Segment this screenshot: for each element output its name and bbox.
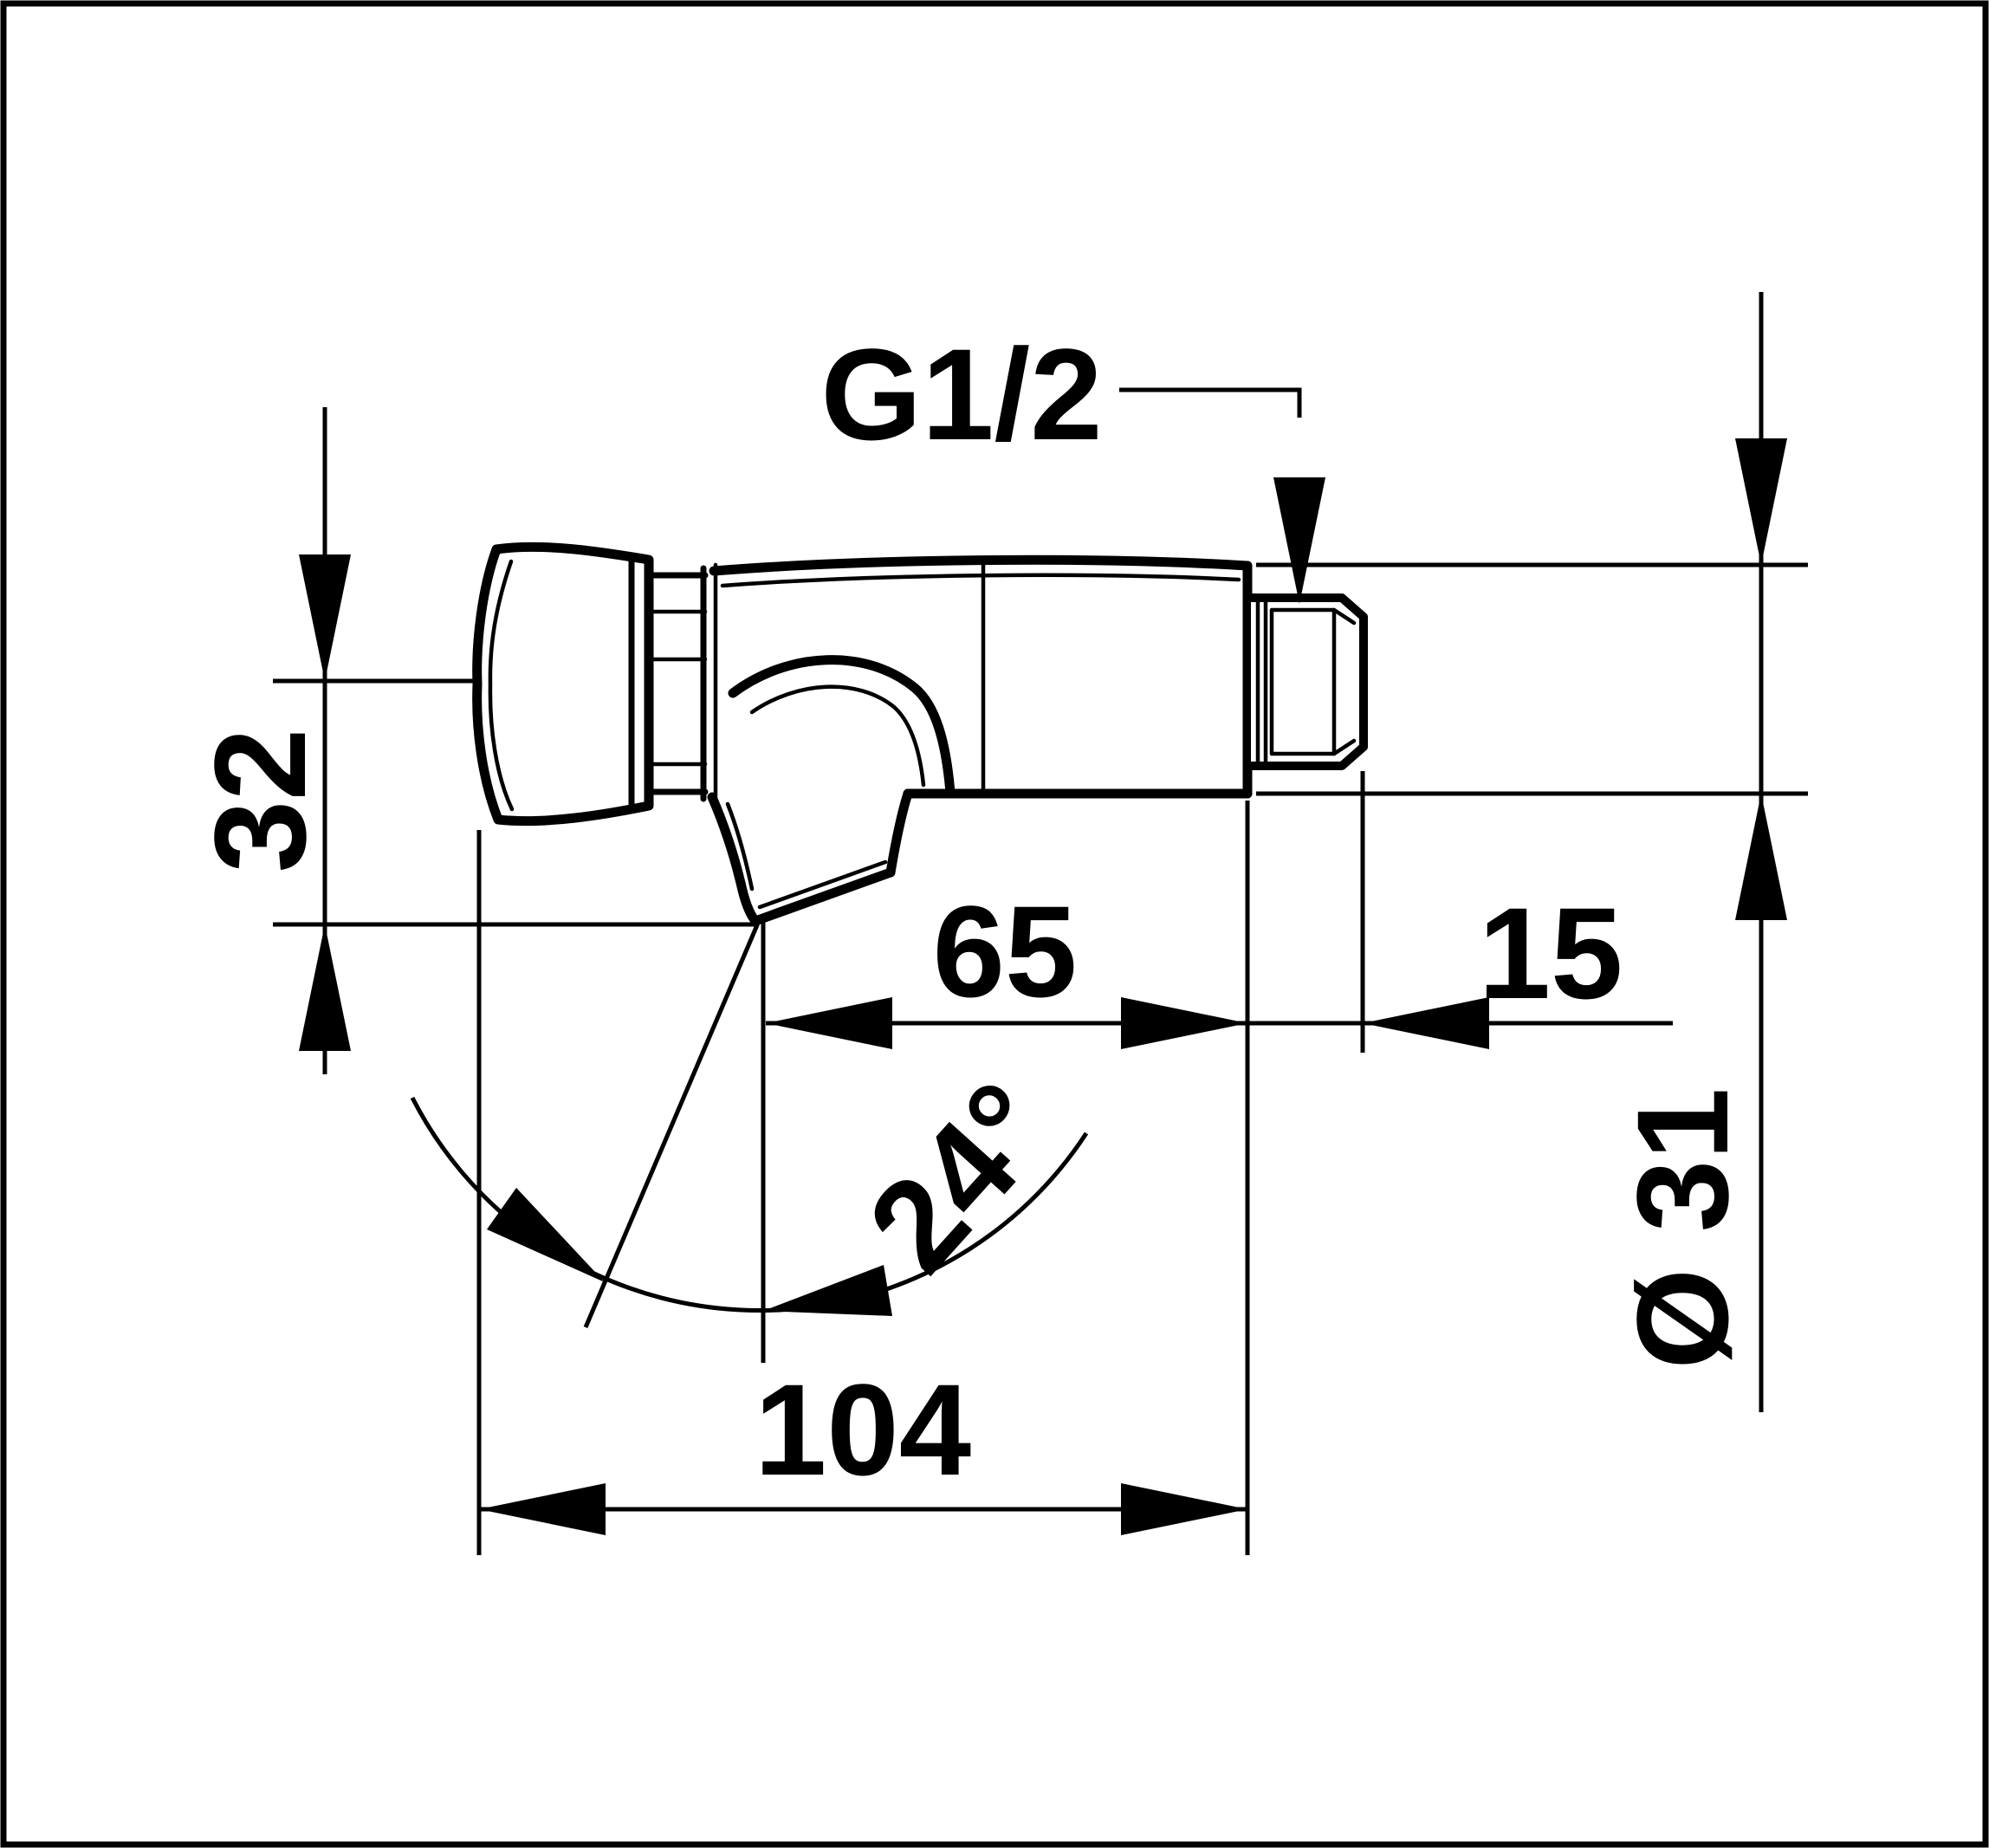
dim-label-dia31: Ø 31: [1610, 1087, 1755, 1369]
arrow-right-icon: [1121, 997, 1247, 1049]
angle-reference-slant-line: [586, 921, 759, 1327]
arrow-down-icon: [1273, 477, 1325, 604]
thread-size-label: G1/2: [820, 321, 1102, 467]
arrow-left-icon: [766, 997, 892, 1049]
nipple-fill: [1251, 598, 1364, 766]
dim-label-32: 32: [187, 729, 333, 873]
dim-label-15: 15: [1479, 880, 1623, 1026]
arrow-arc-lower-right-icon: [763, 1265, 892, 1316]
dim-label-65: 65: [933, 879, 1078, 1024]
body-fill: [714, 561, 1247, 799]
arrow-left-icon: [479, 1483, 606, 1535]
dimension-drawing-canvas: G1/2 32 65 15 24° 104 Ø 31: [0, 0, 1989, 1848]
valve-body: [714, 560, 1247, 799]
valve-part: [477, 547, 1364, 921]
technical-drawing-page: G1/2 32 65 15 24° 104 Ø 31: [0, 0, 1989, 1848]
arrow-arc-lower-left-icon: [487, 1188, 605, 1282]
arrow-down-icon: [1735, 438, 1787, 565]
threaded-nipple: [1251, 598, 1364, 766]
dim-label-104: 104: [755, 1357, 971, 1502]
thread-leader-line: [1119, 390, 1299, 418]
dimension-labels: G1/2 32 65 15 24° 104 Ø 31: [187, 321, 1755, 1502]
arrow-right-icon: [1121, 1483, 1247, 1535]
arrow-left-icon: [1363, 997, 1489, 1049]
dim-label-24deg: 24°: [840, 1055, 1080, 1299]
arrow-up-icon: [1735, 794, 1787, 920]
bell-joint: [703, 565, 716, 801]
arrow-down-icon: [299, 554, 351, 681]
arrow-up-icon: [299, 924, 351, 1051]
push-button: [477, 547, 649, 820]
bonnet-stem: [649, 575, 705, 792]
